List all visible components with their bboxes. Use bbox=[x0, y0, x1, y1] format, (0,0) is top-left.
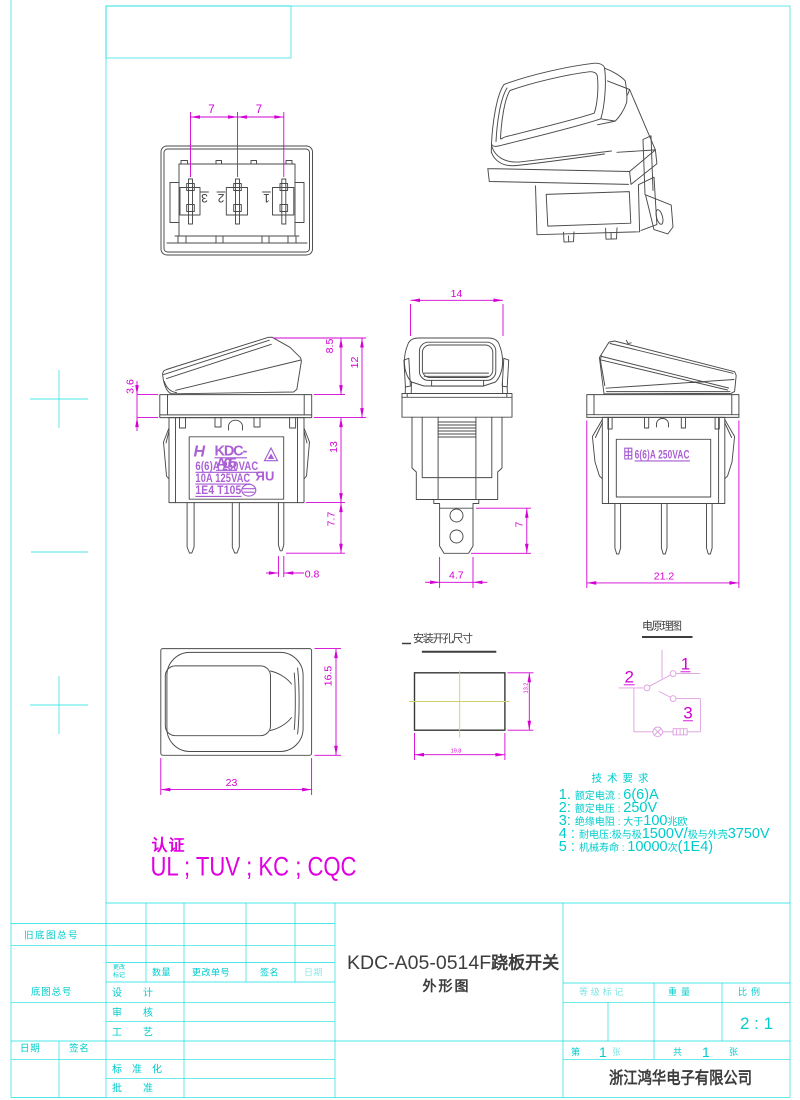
svg-text:电原理图: 电原理图 bbox=[642, 620, 682, 633]
svg-text:日期: 日期 bbox=[304, 968, 323, 978]
svg-text:等级标记: 等级标记 bbox=[579, 986, 626, 997]
svg-text:第: 第 bbox=[571, 1046, 580, 1057]
svg-text:标准化: 标准化 bbox=[112, 1063, 172, 1076]
svg-text:安装开孔尺寸: 安装开孔尺寸 bbox=[413, 631, 473, 645]
svg-text:更改: 更改 bbox=[113, 963, 125, 971]
svg-text:浙江鸿华电子有限公司: 浙江鸿华电子有限公司 bbox=[609, 1068, 752, 1088]
svg-text:重量: 重量 bbox=[668, 986, 694, 997]
svg-text:日期: 日期 bbox=[20, 1044, 41, 1055]
svg-text:1E4 T105: 1E4 T105 bbox=[195, 485, 241, 497]
svg-text:张: 张 bbox=[729, 1047, 738, 1057]
svg-text:7: 7 bbox=[256, 104, 262, 116]
svg-text:1: 1 bbox=[702, 1044, 710, 1060]
svg-text:5 : 机械寿命 : 10000次(1E4): 5 : 机械寿命 : 10000次(1E4) bbox=[559, 839, 713, 855]
svg-text:23: 23 bbox=[226, 777, 238, 789]
svg-text:14: 14 bbox=[451, 288, 463, 300]
svg-text:批准: 批准 bbox=[112, 1082, 174, 1095]
svg-text:比例: 比例 bbox=[738, 986, 764, 997]
svg-text:7.7: 7.7 bbox=[325, 512, 337, 527]
svg-text:ЯU: ЯU bbox=[256, 469, 275, 484]
svg-text:签名: 签名 bbox=[69, 1043, 90, 1055]
svg-text:2: 2 bbox=[624, 668, 633, 687]
svg-text:3.6: 3.6 bbox=[124, 379, 136, 394]
svg-text:0.8: 0.8 bbox=[305, 569, 320, 581]
svg-text:UL ; TUV ; KC ; CQC: UL ; TUV ; KC ; CQC bbox=[151, 852, 357, 882]
svg-text:更改单号: 更改单号 bbox=[192, 967, 230, 978]
svg-text:2 : 1: 2 : 1 bbox=[740, 1014, 773, 1033]
svg-text:12: 12 bbox=[349, 357, 361, 369]
svg-text:标记: 标记 bbox=[113, 971, 125, 979]
svg-text:数量: 数量 bbox=[152, 967, 171, 978]
svg-text:签名: 签名 bbox=[260, 967, 279, 978]
svg-text:技术要求: 技术要求 bbox=[592, 772, 654, 785]
svg-text:4.7: 4.7 bbox=[449, 570, 464, 582]
svg-text:6(6)A 250VAC: 6(6)A 250VAC bbox=[195, 461, 258, 473]
svg-text:1: 1 bbox=[599, 1044, 607, 1060]
svg-text:2: 2 bbox=[217, 191, 224, 205]
svg-text:1: 1 bbox=[681, 655, 690, 674]
svg-text:H: H bbox=[194, 444, 206, 461]
svg-text:10A 125VAC: 10A 125VAC bbox=[195, 473, 250, 485]
svg-text:7: 7 bbox=[208, 104, 214, 116]
svg-text:3: 3 bbox=[683, 704, 692, 723]
svg-text:6(6)A 250VAC: 6(6)A 250VAC bbox=[635, 448, 690, 462]
svg-text:16.5: 16.5 bbox=[322, 666, 334, 687]
svg-text:审核: 审核 bbox=[112, 1006, 174, 1019]
svg-text:13: 13 bbox=[328, 441, 340, 453]
svg-text:21.2: 21.2 bbox=[654, 571, 675, 583]
svg-text:1: 1 bbox=[263, 191, 270, 205]
svg-text:底图总号: 底图总号 bbox=[31, 986, 72, 998]
svg-text:外形图: 外形图 bbox=[423, 978, 469, 994]
svg-text:8.5: 8.5 bbox=[324, 339, 336, 354]
svg-text:3: 3 bbox=[201, 191, 208, 205]
svg-text:工艺: 工艺 bbox=[112, 1027, 174, 1039]
svg-text:共: 共 bbox=[673, 1047, 682, 1057]
svg-text:设计: 设计 bbox=[112, 986, 174, 999]
svg-text:张: 张 bbox=[612, 1047, 621, 1057]
svg-text:7: 7 bbox=[513, 521, 525, 527]
svg-text:19.8: 19.8 bbox=[451, 749, 462, 755]
svg-text:旧底图总号: 旧底图总号 bbox=[24, 930, 79, 942]
svg-text:13.2: 13.2 bbox=[523, 683, 529, 694]
svg-text:KDC-A05-0514F跷板开关: KDC-A05-0514F跷板开关 bbox=[347, 952, 559, 974]
